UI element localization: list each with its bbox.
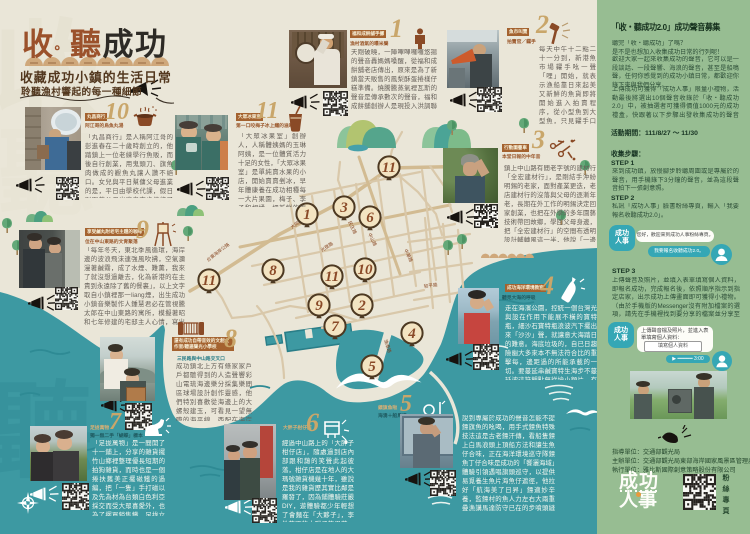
svg-text:10: 10	[358, 262, 374, 278]
svg-text:7: 7	[331, 319, 339, 335]
svg-text:1: 1	[303, 207, 311, 223]
svg-text:5: 5	[368, 359, 376, 375]
svg-text:8: 8	[269, 263, 277, 279]
svg-text:9: 9	[315, 298, 323, 314]
svg-text:4: 4	[407, 326, 416, 342]
svg-text:光復路: 光復路	[319, 240, 335, 254]
svg-text:台東海岸公路: 台東海岸公路	[205, 241, 231, 264]
svg-text:6: 6	[366, 210, 374, 226]
svg-text:3: 3	[339, 200, 348, 216]
svg-text:11: 11	[325, 269, 339, 285]
svg-text:11: 11	[202, 273, 216, 289]
svg-text:11: 11	[382, 160, 396, 176]
svg-text:2: 2	[357, 298, 366, 314]
